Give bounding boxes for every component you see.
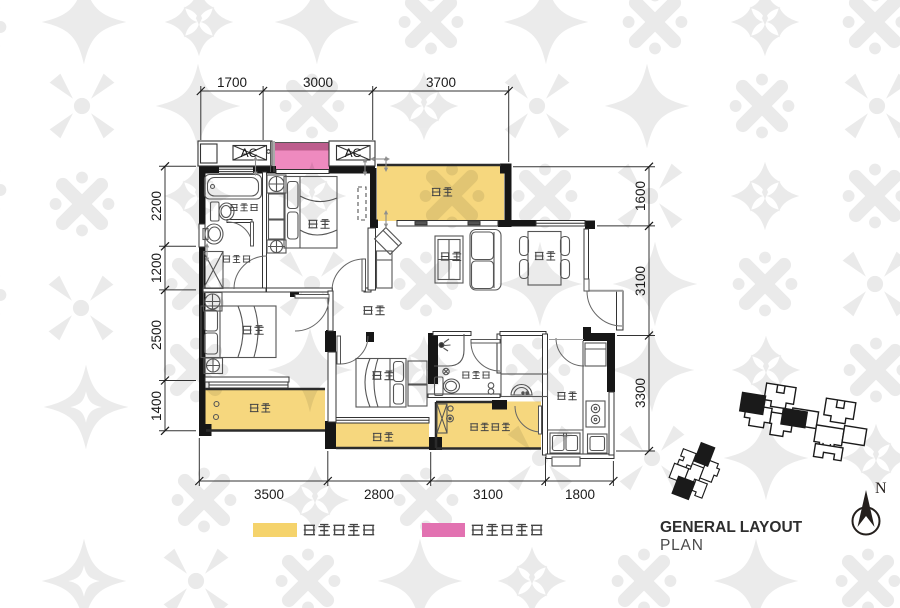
svg-text:3100: 3100 bbox=[473, 487, 503, 502]
svg-text:1600: 1600 bbox=[633, 181, 648, 211]
svg-text:1700: 1700 bbox=[217, 75, 247, 90]
svg-text:3100: 3100 bbox=[633, 266, 648, 296]
svg-text:GENERAL LAYOUT: GENERAL LAYOUT bbox=[660, 519, 803, 536]
svg-text:3700: 3700 bbox=[426, 75, 456, 90]
svg-text:3500: 3500 bbox=[254, 487, 284, 502]
svg-text:AC: AC bbox=[345, 146, 362, 160]
svg-text:2200: 2200 bbox=[149, 191, 164, 221]
svg-text:2800: 2800 bbox=[364, 487, 394, 502]
svg-text:3000: 3000 bbox=[303, 75, 333, 90]
svg-text:N: N bbox=[875, 480, 887, 497]
svg-text:2500: 2500 bbox=[149, 320, 164, 350]
svg-text:1200: 1200 bbox=[149, 253, 164, 283]
svg-text:1800: 1800 bbox=[565, 487, 595, 502]
svg-text:1400: 1400 bbox=[149, 391, 164, 421]
svg-text:PLAN: PLAN bbox=[660, 537, 704, 554]
svg-text:3300: 3300 bbox=[633, 378, 648, 408]
